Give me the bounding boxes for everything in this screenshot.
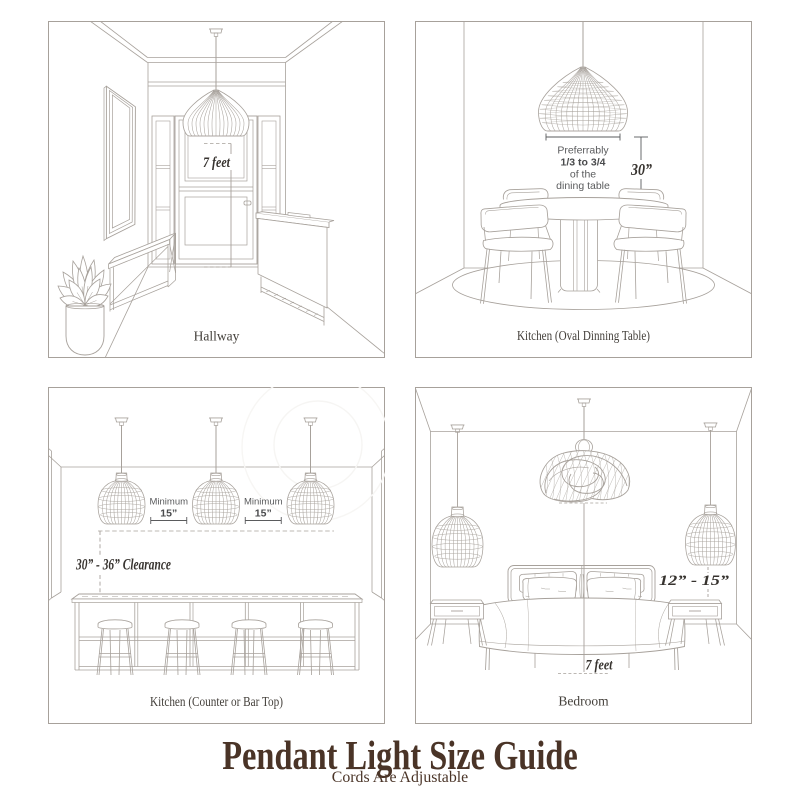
- svg-text:12” - 15”: 12” - 15”: [659, 573, 730, 589]
- svg-text:dining table: dining table: [556, 180, 610, 192]
- svg-text:30” - 36” Clearance: 30” - 36” Clearance: [75, 557, 171, 574]
- svg-text:Hallway: Hallway: [194, 329, 240, 344]
- svg-text:30”: 30”: [630, 160, 652, 179]
- svg-text:Kitchen (Counter or Bar Top): Kitchen (Counter or Bar Top): [150, 694, 283, 709]
- svg-text:15”: 15”: [160, 508, 177, 520]
- svg-text:Bedroom: Bedroom: [558, 694, 609, 709]
- svg-text:1/3 to 3/4: 1/3 to 3/4: [561, 157, 606, 169]
- svg-text:Kitchen (Oval Dinning Table): Kitchen (Oval Dinning Table): [517, 328, 650, 343]
- svg-text:15”: 15”: [255, 508, 272, 520]
- svg-text:7 feet: 7 feet: [203, 155, 231, 171]
- svg-text:Minimum: Minimum: [149, 497, 188, 508]
- svg-text:Minimum: Minimum: [244, 497, 283, 508]
- svg-text:of the: of the: [570, 169, 596, 181]
- svg-text:Preferrably: Preferrably: [557, 145, 609, 157]
- svg-text:7 feet: 7 feet: [586, 658, 614, 674]
